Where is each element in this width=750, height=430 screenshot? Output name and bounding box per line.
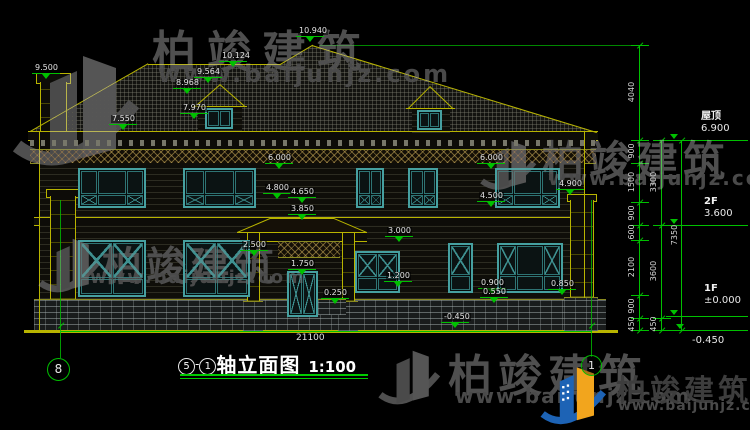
elevation-mark: 0.550 [482,288,507,296]
window-pane [517,276,544,290]
elevation-mark: 10.940 [298,27,328,35]
pilaster-right-base [564,297,598,331]
elevation-mark: 4.650 [290,188,315,196]
window-pane [127,171,143,194]
window-pane [424,195,436,205]
elevation-mark-triangle [275,164,283,169]
level-value: 6.900 [701,124,730,134]
window-pane [359,195,370,205]
window-pane [517,246,544,275]
title-underline-2 [180,378,368,379]
drawing-title: 5-1轴立面图1:100 [178,349,356,378]
window-pane [358,278,377,290]
window-pane [544,246,560,275]
elevation-mark-triangle [42,74,50,79]
window-pane [358,254,377,277]
dormer-window-right [417,110,442,130]
elevation-mark: 1.750 [290,260,315,268]
window-pane [127,195,143,205]
window-pane [359,171,370,194]
elevation-mark: 4.900 [558,180,583,188]
elevation-mark-triangle [394,282,402,287]
window-pane [411,171,423,194]
window-pane [451,246,470,275]
window-pane [371,171,382,194]
vertical-dimension: 3300 [650,167,658,197]
window-pane [424,171,436,194]
brand-logo-icon [376,342,442,408]
window-pane [81,195,97,205]
elevation-mark: 3.000 [387,227,412,235]
elevation-mark-triangle [183,89,191,94]
elevation-mark: 3.850 [290,205,315,213]
window-pane [500,246,516,275]
window-2f-d [408,168,438,208]
elevation-mark-triangle [558,290,566,295]
vertical-dimension: 3600 [650,256,658,286]
elevation-mark-triangle [298,270,306,275]
elevation-mark-triangle [229,62,237,67]
level-label: 1F [704,284,718,294]
elevation-mark-triangle [451,323,459,328]
window-pane [205,195,235,205]
window-pane [235,195,253,205]
elevation-mark: -0.450 [443,313,471,321]
elevation-mark-triangle [119,125,127,130]
elevation-mark: 0.850 [550,280,575,288]
vertical-dimension: 600 [628,217,636,247]
elevation-mark-triangle [490,298,498,303]
elevation-mark: 8.968 [175,79,200,87]
level-value: 3.600 [704,209,733,219]
window-1f-d [448,243,473,293]
grid-bubble-left: 8 [47,358,70,381]
window-pane [420,113,429,127]
level-label: 2F [704,197,718,207]
axis-start-bubble: 5 [178,358,195,375]
window-pane [98,195,126,205]
cad-canvas: 柏竣建筑 www.baijunjz.com 柏竣建筑 www.baijunjz.… [0,0,750,430]
porch-column-base-left [243,301,263,331]
elevation-mark: 6.000 [479,154,504,162]
level-triangle [670,134,678,139]
elevation-mark: 2.500 [242,241,267,249]
dimension-line [61,331,592,332]
axis-end-bubble: 1 [199,358,216,375]
window-pane [514,195,540,205]
dimension-line [666,316,748,317]
watermark-url-text: www.baijunjz.com [90,267,306,288]
window-2f-c [356,168,384,208]
level-label: 屋顶 [701,112,721,122]
elevation-mark: 9.564 [196,68,221,76]
elevation-mark: 10.124 [221,52,251,60]
brand-logo-icon [8,38,143,173]
outline-line [237,232,367,233]
window-pane [371,195,382,205]
elevation-mark: 4.800 [265,184,290,192]
window-pane [205,171,235,194]
elevation-mark-triangle [204,78,212,83]
title-underline [180,374,368,376]
vertical-dimension: 7350 [671,220,679,250]
grid-bubble-right: 1 [581,355,602,376]
window-2f-b [183,168,256,208]
window-pane [220,111,231,126]
level-value: -0.450 [692,336,724,346]
elevation-mark-triangle [487,164,495,169]
elevation-mark-triangle [331,299,339,304]
window-2f-a [78,168,146,208]
elevation-mark-triangle [487,202,495,207]
elevation-mark-triangle [566,190,574,195]
window-pane [411,195,423,205]
elevation-mark: 7.970 [182,104,207,112]
vertical-dimension: 4040 [628,77,636,107]
outline-line [406,108,455,109]
window-pane [542,195,557,205]
level-triangle [670,310,678,315]
elevation-mark-triangle [273,194,281,199]
elevation-mark-triangle [306,37,314,42]
dimension-line [591,200,592,357]
elevation-mark-triangle [250,251,258,256]
vertical-dimension: 450 [628,309,636,339]
elevation-mark: 9.500 [34,64,59,72]
elevation-mark: 4.500 [479,192,504,200]
elevation-mark-triangle [298,198,306,203]
brand-url: www.baijunjz.com [618,398,750,414]
total-width-dimension: 21100 [296,333,325,343]
elevation-mark: 6.000 [267,154,292,162]
level-value: ±0.000 [704,296,741,306]
porch-lattice [278,241,340,258]
elevation-mark: 0.900 [480,279,505,287]
window-pane [451,276,470,290]
level-triangle [676,324,684,329]
vertical-dimension: 2100 [628,252,636,282]
vertical-dimension: 1500 [628,167,636,197]
elevation-mark-triangle [395,237,403,242]
window-pane [208,111,219,126]
vertical-dimension: 900 [628,136,636,166]
window-pane [186,195,204,205]
window-pane [235,171,253,194]
window-pane [98,171,126,194]
elevation-mark: 0.250 [323,289,348,297]
elevation-mark: 7.550 [111,115,136,123]
dormer-window-left [205,108,233,129]
elevation-mark-triangle [190,114,198,119]
elevation-mark: 1.200 [386,272,411,280]
elevation-mark-triangle [298,215,306,220]
window-pane [81,171,97,194]
window-pane [186,171,204,194]
window-pane [430,113,439,127]
vertical-dimension: 450 [650,309,658,339]
